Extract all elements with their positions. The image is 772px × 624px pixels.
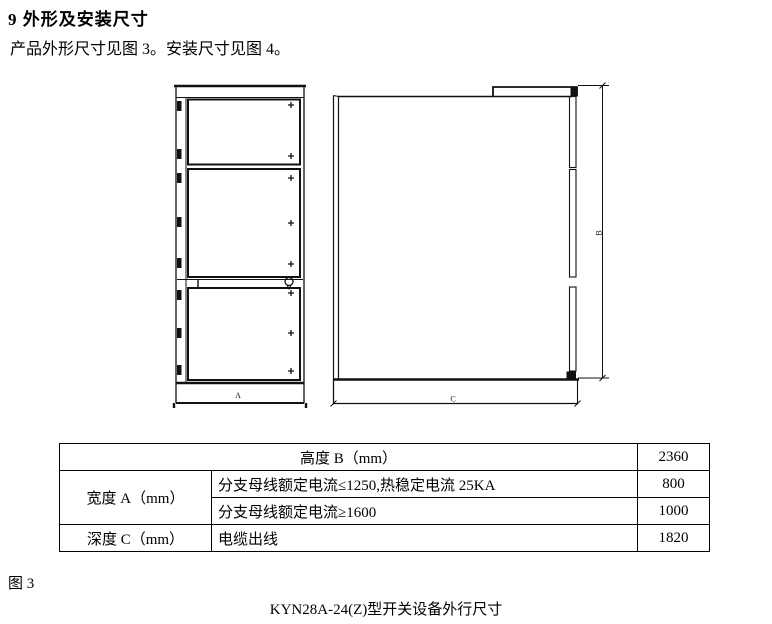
dim-label-b: B [595,230,604,235]
depth-desc-cell: 电缆出线 [212,525,638,552]
door-screw-marks [288,102,294,374]
figure-caption: KYN28A-24(Z)型开关设备外行尺寸 [0,598,772,619]
dim-label-c: C [450,395,455,404]
table-row-height: 高度 B（mm） 2360 [60,444,710,471]
dim-label-a: A [235,391,241,400]
door-lock-handle [285,278,293,286]
height-value-cell: 2360 [638,444,710,471]
depth-label-cell: 深度 C（mm） [60,525,212,552]
height-label-cell: 高度 B（mm） [60,444,638,471]
front-door-top [188,100,300,165]
roof-protrusion [493,87,577,97]
document-page: 9 外形及安装尺寸 产品外形尺寸见图 3。安装尺寸见图 4。 [0,0,772,624]
table-row-width-case1: 宽度 A（mm） 分支母线额定电流≤1250,热稳定电流 25KA 800 [60,471,710,498]
width-label-cell: 宽度 A（mm） [60,471,212,525]
front-door-middle [188,169,300,277]
dimension-table: 高度 B（mm） 2360 宽度 A（mm） 分支母线额定电流≤1250,热稳定… [59,443,710,552]
front-view-drawing: A [174,86,306,408]
width-case2-desc-cell: 分支母线额定电流≥1600 [212,498,638,525]
width-case1-desc-cell: 分支母线额定电流≤1250,热稳定电流 25KA [212,471,638,498]
width-case1-value-cell: 800 [638,471,710,498]
table-row-depth: 深度 C（mm） 电缆出线 1820 [60,525,710,552]
depth-value-cell: 1820 [638,525,710,552]
figure-number: 图 3 [8,572,34,593]
front-door-bottom [188,288,300,380]
side-view-drawing: C B [331,83,610,407]
width-case2-value-cell: 1000 [638,498,710,525]
hinge-marks [177,101,182,375]
